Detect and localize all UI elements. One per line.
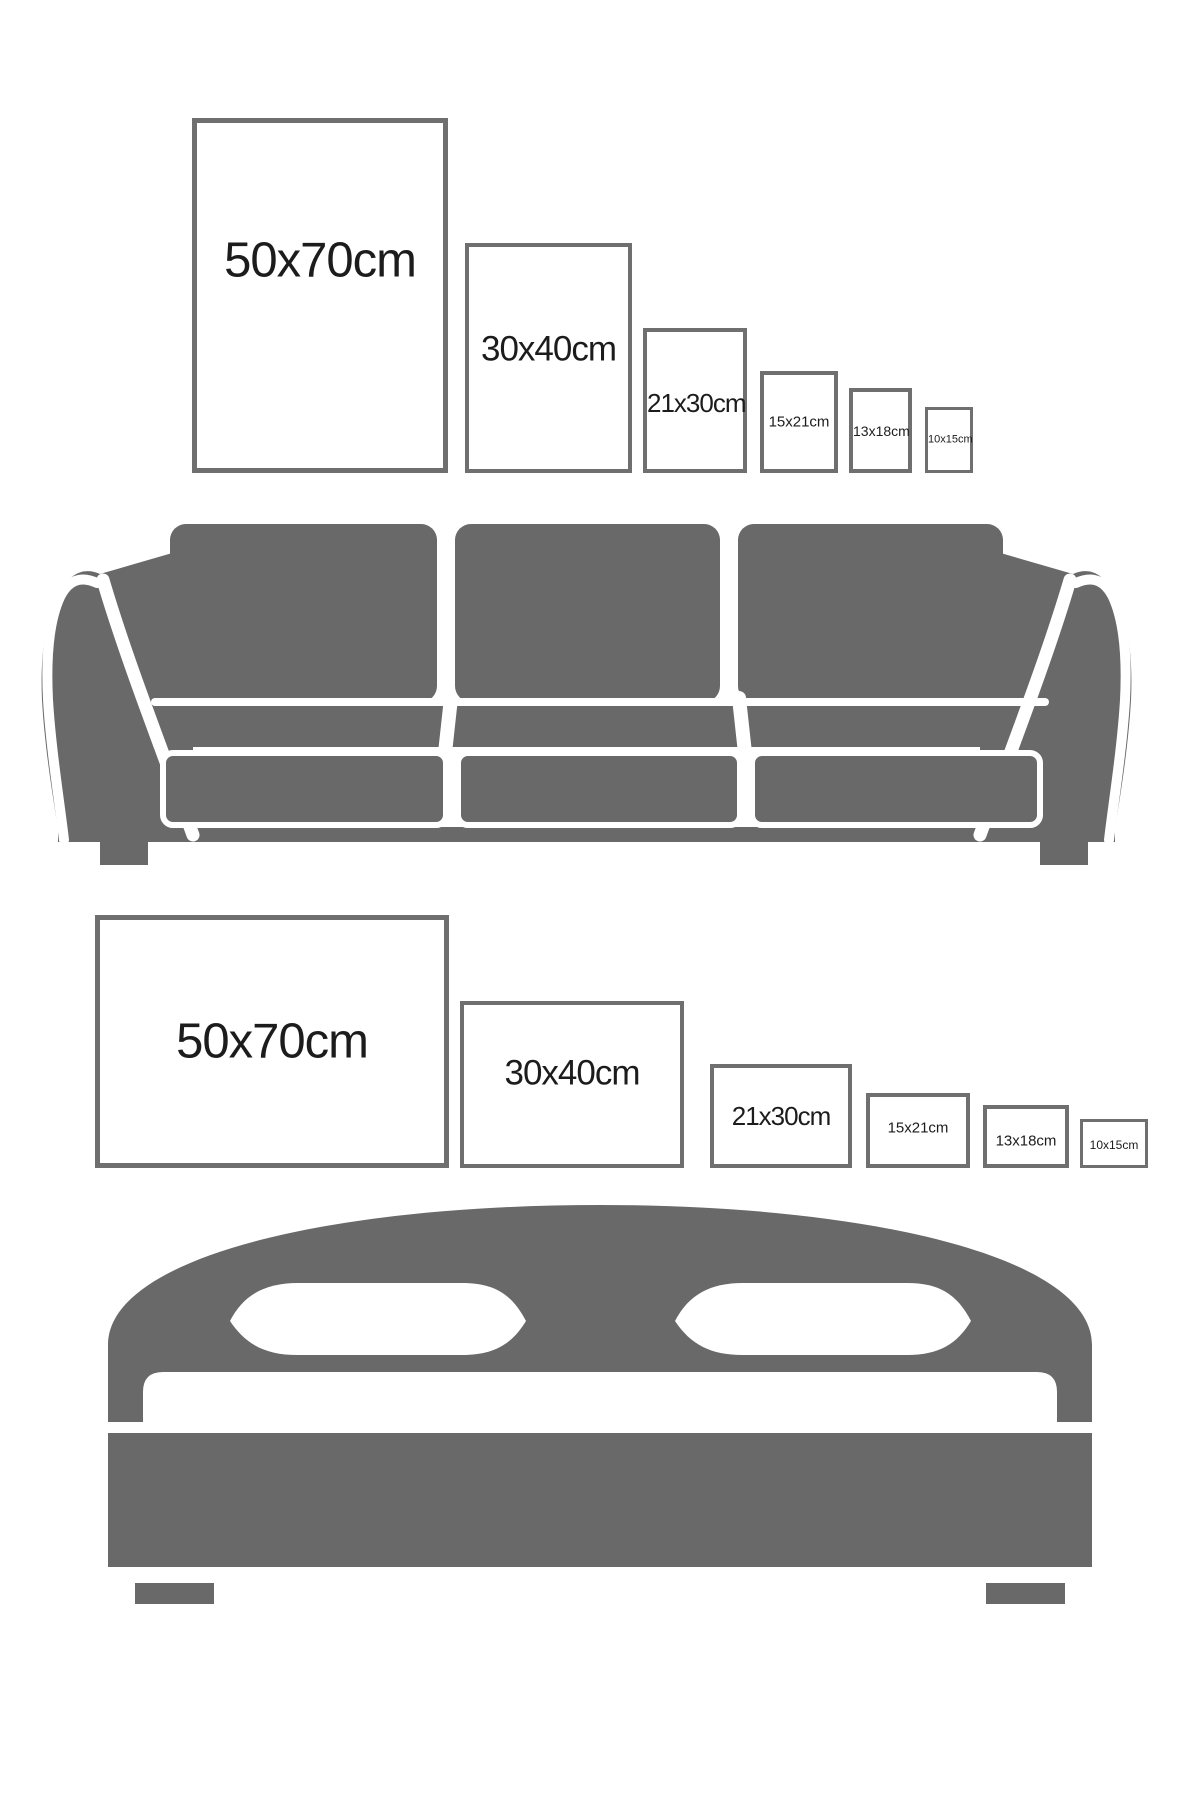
sofa-seam	[739, 698, 745, 753]
bed-pillow-right	[675, 1283, 971, 1355]
sofa-seam	[445, 698, 451, 753]
frame-portrait-15x21: 15x21cm	[760, 371, 838, 473]
frame-landscape-30x40: 30x40cm	[460, 1001, 684, 1168]
frame-size-label: 15x21cm	[870, 1121, 966, 1136]
sofa-base	[58, 827, 1115, 842]
poster-size-guide: 50x70cm 30x40cm 21x30cm 15x21cm 13x18cm …	[0, 0, 1200, 1800]
frame-landscape-50x70: 50x70cm	[95, 915, 449, 1168]
frame-size-label: 10x15cm	[1083, 1139, 1145, 1151]
sofa-seat-cushion-right	[752, 753, 1040, 825]
bed-icon	[0, 1195, 1200, 1615]
frame-size-label: 13x18cm	[987, 1133, 1065, 1148]
frame-size-label: 30x40cm	[469, 332, 628, 367]
frame-portrait-10x15: 10x15cm	[925, 407, 973, 473]
frame-size-label: 50x70cm	[100, 1017, 444, 1066]
bed-foot-left	[135, 1583, 214, 1604]
sofa-icon	[0, 495, 1200, 885]
frame-portrait-13x18: 13x18cm	[849, 388, 912, 473]
bed-base	[108, 1433, 1092, 1567]
frame-landscape-15x21: 15x21cm	[866, 1093, 970, 1168]
sofa-seat-cushion-left	[163, 753, 446, 825]
frame-size-label: 30x40cm	[464, 1056, 680, 1091]
frame-size-label: 21x30cm	[714, 1103, 848, 1129]
frame-size-label: 50x70cm	[197, 237, 443, 286]
frame-landscape-10x15: 10x15cm	[1080, 1119, 1148, 1168]
frame-portrait-30x40: 30x40cm	[465, 243, 632, 473]
frame-landscape-13x18: 13x18cm	[983, 1105, 1069, 1168]
frame-landscape-21x30: 21x30cm	[710, 1064, 852, 1168]
frame-size-label: 13x18cm	[853, 424, 908, 438]
sofa-back-cushion-left	[170, 524, 437, 702]
sofa-seat-deck	[148, 702, 1052, 747]
frame-size-label: 15x21cm	[764, 415, 834, 430]
sofa-back-cushion-right	[738, 524, 1003, 702]
frame-portrait-21x30: 21x30cm	[643, 328, 747, 473]
sofa-foot-left	[100, 842, 148, 865]
bed-foot-right	[986, 1583, 1065, 1604]
sofa-seat-cushion-middle	[458, 753, 740, 825]
frame-portrait-50x70: 50x70cm	[192, 118, 448, 473]
bed-pillow-left	[230, 1283, 526, 1355]
sofa-foot-right	[1040, 842, 1088, 865]
frame-size-label: 21x30cm	[647, 390, 743, 416]
sofa-back-cushion-middle	[455, 524, 720, 702]
frame-size-label: 10x15cm	[928, 435, 970, 446]
